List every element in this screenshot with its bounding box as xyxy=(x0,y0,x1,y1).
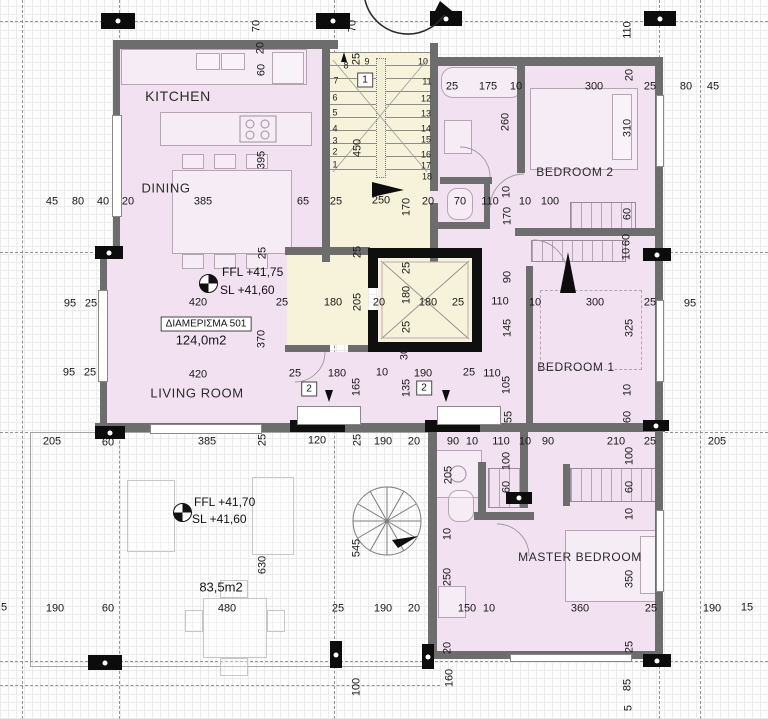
column-marker xyxy=(643,248,671,261)
dimension-label: 300 xyxy=(585,82,603,93)
grid-axis-line xyxy=(0,685,440,686)
dimension-label: 450 xyxy=(353,139,364,157)
dimension-label: 10 xyxy=(443,528,454,540)
stair-step-number: 7 xyxy=(333,77,338,86)
dimension-label: 25 xyxy=(330,197,342,208)
dimension-label: 100 xyxy=(541,197,559,208)
dimension-label: 95 xyxy=(63,368,75,379)
column-dot xyxy=(107,250,112,255)
column-dot xyxy=(116,19,121,24)
dimension-label: 100 xyxy=(352,678,363,696)
dimension-label: 25 xyxy=(353,246,364,258)
wall-segment xyxy=(113,40,338,49)
dimension-label: 10 xyxy=(510,82,522,93)
column-marker xyxy=(330,641,342,668)
stair-step-number: 5 xyxy=(332,109,337,118)
terrace-area: 83,5m2 xyxy=(199,580,242,595)
terrace-sl: SL +41,60 xyxy=(192,513,247,525)
room-label-dining: DINING xyxy=(141,182,190,195)
column-dot xyxy=(108,430,113,435)
dimension-label: 180 xyxy=(402,286,413,304)
furniture-outline xyxy=(220,658,248,676)
dimension-label: 150 xyxy=(458,604,476,615)
dimension-label: 10 xyxy=(622,248,633,260)
window-tag: 2 xyxy=(301,382,317,397)
stair-railing xyxy=(376,58,386,178)
dimension-label: 25 xyxy=(446,82,458,93)
dimension-label: 205 xyxy=(43,437,61,448)
dimension-label: 80 xyxy=(72,197,84,208)
dimension-label: 110 xyxy=(492,437,510,448)
apartment-area: 124,0m2 xyxy=(176,333,227,348)
furniture-outline xyxy=(252,477,294,555)
apartment-sl: SL +41,60 xyxy=(220,284,275,296)
furniture-outline xyxy=(127,480,175,552)
dimension-label: 110 xyxy=(491,297,509,308)
stair-step-number: 6 xyxy=(332,94,337,103)
column-dot xyxy=(331,19,336,24)
window-tag: 2 xyxy=(416,381,432,396)
dimension-label: 190 xyxy=(374,604,392,615)
dimension-label: 25 xyxy=(258,434,269,446)
dimension-label: 190 xyxy=(46,604,64,615)
floor-plan-canvas: FFL +41,75 SL +41,60 ΔΙΑΜΕΡΙΣΜΑ 501 124,… xyxy=(0,0,768,719)
dimension-label: 25 xyxy=(352,53,363,65)
column-marker xyxy=(643,654,671,667)
room-label-living-room: LIVING ROOM xyxy=(150,387,243,400)
wall-segment xyxy=(285,345,330,352)
room-label-kitchen: KITCHEN xyxy=(145,89,211,103)
level-target-icon xyxy=(199,274,218,293)
column-marker xyxy=(88,655,122,670)
dimension-label: 10 xyxy=(529,298,541,309)
dimension-label: 135 xyxy=(402,379,413,397)
dimension-label: 40 xyxy=(97,197,109,208)
dimension-label: 85 xyxy=(623,679,634,691)
dimension-label: 325 xyxy=(625,319,636,337)
column-dot xyxy=(655,252,660,257)
wall-segment-dark xyxy=(368,342,482,352)
dimension-label: 260 xyxy=(501,113,512,131)
window xyxy=(297,406,361,425)
dimension-label: 180 xyxy=(419,298,437,309)
dimension-label: 95 xyxy=(64,299,76,310)
dimension-label: 190 xyxy=(374,437,392,448)
dimension-label: 60 xyxy=(622,234,633,246)
column-marker xyxy=(95,246,123,259)
dimension-label: 205 xyxy=(353,293,364,311)
dimension-label: 25 xyxy=(402,262,413,274)
grid-axis-line xyxy=(22,0,23,719)
dimension-label: 20 xyxy=(422,197,434,208)
dimension-label: 25 xyxy=(258,247,269,259)
stair-step-number: 12 xyxy=(421,95,431,104)
dimension-label: 25 xyxy=(402,321,413,333)
dimension-label: 20 xyxy=(443,642,454,654)
dimension-label: 250 xyxy=(443,568,454,586)
dimension-label: 630 xyxy=(258,556,269,574)
dimension-label: 300 xyxy=(586,298,604,309)
column-dot xyxy=(658,16,663,21)
wall-segment xyxy=(322,43,330,262)
dimension-label: 20 xyxy=(408,604,420,615)
dimension-label: 250 xyxy=(372,196,390,207)
dimension-label: 10 xyxy=(502,186,513,198)
column-dot xyxy=(517,496,522,501)
dimension-label: 10 xyxy=(483,604,495,615)
column-dot xyxy=(444,16,449,21)
dimension-label: 5 xyxy=(1,603,7,614)
furniture-outline xyxy=(196,53,220,70)
window xyxy=(98,290,108,382)
dimension-label: 110 xyxy=(481,197,499,208)
dimension-label: 205 xyxy=(708,437,726,448)
furniture-outline xyxy=(182,254,204,269)
stair-step-number: 2 xyxy=(332,148,337,157)
stair-step-number: 17 xyxy=(421,162,431,171)
furniture-outline xyxy=(640,536,656,594)
window xyxy=(656,510,664,592)
furniture-outline xyxy=(182,154,204,169)
wall-segment xyxy=(563,464,570,506)
column-dot xyxy=(426,654,431,659)
dimension-label: 25 xyxy=(625,641,636,653)
dimension-label: 175 xyxy=(479,82,497,93)
terrace-ffl: FFL +41,70 xyxy=(194,496,255,508)
dimension-label: 70 xyxy=(454,197,466,208)
window-tag: 1 xyxy=(357,73,373,88)
dimension-label: 60 xyxy=(257,64,268,76)
dimension-label: 100 xyxy=(625,447,636,465)
room-label-bedroom-1: BEDROOM 1 xyxy=(537,361,614,373)
stair-step-number: 1 xyxy=(332,161,337,170)
window xyxy=(510,654,632,662)
dimension-label: 55 xyxy=(504,411,515,423)
dimension-label: 70 xyxy=(252,20,263,32)
dimension-label: 60 xyxy=(623,411,634,423)
stair-step-number: 8 xyxy=(343,62,348,71)
column-dot xyxy=(655,658,660,663)
dimension-label: 25 xyxy=(332,604,344,615)
dimension-label: 350 xyxy=(625,570,636,588)
dimension-label: 25 xyxy=(85,299,97,310)
wall-segment xyxy=(430,57,663,66)
stair-step-number: 3 xyxy=(332,137,337,146)
dimension-label: 20 xyxy=(408,437,420,448)
wall-segment xyxy=(348,345,368,352)
column-marker xyxy=(430,11,462,26)
wall-segment-dark xyxy=(368,248,482,258)
wall-segment-dark xyxy=(472,258,482,342)
window xyxy=(150,424,262,434)
dimension-label: 190 xyxy=(703,604,721,615)
dimension-label: 80 xyxy=(680,82,692,93)
dimension-label: 100 xyxy=(502,452,513,470)
furniture-outline xyxy=(221,53,245,70)
dimension-label: 190 xyxy=(414,369,432,380)
dimension-label: 25 xyxy=(353,434,364,446)
dimension-label: 10 xyxy=(623,384,634,396)
dimension-label: 95 xyxy=(684,299,696,310)
dimension-label: 25 xyxy=(644,298,656,309)
dimension-label: 25 xyxy=(452,298,464,309)
column-marker xyxy=(644,11,676,26)
dimension-label: 20 xyxy=(122,197,134,208)
furniture-outline xyxy=(185,610,203,632)
dimension-label: 160 xyxy=(445,669,456,687)
dimension-label: 145 xyxy=(503,319,514,337)
stair-step-number: 13 xyxy=(421,110,431,119)
dimension-label: 395 xyxy=(257,151,268,169)
apartment-tag: ΔΙΑΜΕΡΙΣΜΑ 501 xyxy=(161,317,252,332)
furniture-outline xyxy=(444,120,472,154)
dimension-label: 210 xyxy=(607,437,625,448)
stair-step-number: 16 xyxy=(421,151,431,160)
window xyxy=(656,95,664,167)
wall-segment xyxy=(478,462,486,516)
window xyxy=(437,406,501,425)
wall-segment xyxy=(428,432,437,658)
dimension-label: 110 xyxy=(623,21,634,39)
stair-step-number: 18 xyxy=(422,173,432,182)
stair-step-number: 15 xyxy=(421,136,431,145)
room-label-master-bedroom: MASTER BEDROOM xyxy=(518,551,642,563)
dimension-label: 15 xyxy=(741,603,753,614)
dimension-label: 45 xyxy=(46,197,58,208)
stair-step-number: 11 xyxy=(422,78,431,87)
level-target-icon xyxy=(173,503,192,522)
dimension-label: 30 xyxy=(400,348,411,360)
dimension-label: 60 xyxy=(102,604,114,615)
dimension-label: 20 xyxy=(256,42,267,54)
dimension-label: 25 xyxy=(276,298,288,309)
wall-segment-dark xyxy=(368,258,378,288)
column-dot xyxy=(103,660,108,665)
column-marker xyxy=(643,420,669,431)
window xyxy=(112,115,122,217)
stair-step-number: 14 xyxy=(421,125,431,134)
wall-segment xyxy=(474,512,534,520)
dimension-label: 5 xyxy=(624,705,635,711)
closet-hatch xyxy=(570,468,660,502)
dimension-label: 25 xyxy=(644,437,656,448)
dimension-label: 165 xyxy=(352,378,363,396)
column-marker xyxy=(101,13,135,29)
dimension-label: 170 xyxy=(402,198,413,216)
dimension-label: 65 xyxy=(297,197,309,208)
dimension-label: 20 xyxy=(625,69,636,81)
wall-segment xyxy=(430,43,438,191)
dimension-label: 10 xyxy=(519,437,531,448)
dimension-label: 110 xyxy=(483,369,501,380)
furniture-outline xyxy=(272,52,304,84)
wall-segment xyxy=(526,266,533,423)
column-dot xyxy=(654,423,659,428)
dimension-label: 90 xyxy=(447,437,459,448)
stair-step-number: 10 xyxy=(418,58,428,67)
dimension-label: 25 xyxy=(463,368,475,379)
dimension-label: 120 xyxy=(308,436,326,447)
furniture-outline xyxy=(214,154,236,169)
dimension-label: 180 xyxy=(324,298,342,309)
room-label-bedroom-2: BEDROOM 2 xyxy=(536,166,613,178)
dimension-label: 20 xyxy=(373,298,385,309)
dimension-label: 60 xyxy=(502,481,513,493)
dimension-label: 420 xyxy=(189,298,207,309)
stair-step-number: 9 xyxy=(364,58,369,67)
dimension-label: 60 xyxy=(102,438,114,449)
furniture-outline xyxy=(160,112,312,146)
dimension-label: 90 xyxy=(542,437,554,448)
dimension-label: 360 xyxy=(571,604,589,615)
dimension-label: 25 xyxy=(644,82,656,93)
dimension-label: 420 xyxy=(189,370,207,381)
grid-axis-line xyxy=(700,0,701,719)
dimension-label: 205 xyxy=(444,466,455,484)
column-marker xyxy=(422,644,434,669)
stair-step-number: 4 xyxy=(332,125,337,134)
column-dot xyxy=(334,652,339,657)
closet-hatch xyxy=(531,240,626,262)
dimension-label: 480 xyxy=(218,604,236,615)
window xyxy=(656,300,664,382)
dimension-label: 310 xyxy=(623,119,634,137)
wall-segment xyxy=(515,228,663,236)
wall-segment-dark xyxy=(368,310,378,352)
dimension-label: 10 xyxy=(625,508,636,520)
dimension-label: 90 xyxy=(503,271,514,283)
furniture-outline xyxy=(267,610,285,632)
dimension-label: 545 xyxy=(352,539,363,557)
dimension-label: 385 xyxy=(194,197,212,208)
dimension-label: 60 xyxy=(625,481,636,493)
furniture-outline xyxy=(448,490,474,522)
column-marker xyxy=(506,492,532,504)
dimension-label: 70 xyxy=(348,20,359,32)
wall-segment xyxy=(433,222,489,229)
dimension-label: 370 xyxy=(257,330,268,348)
dimension-label: 25 xyxy=(645,604,657,615)
dimension-label: 10 xyxy=(376,368,388,379)
dimension-label: 170 xyxy=(503,207,514,225)
dimension-label: 60 xyxy=(623,208,634,220)
dimension-label: 10 xyxy=(466,437,478,448)
dimension-label: 385 xyxy=(198,437,216,448)
dimension-label: 10 xyxy=(519,197,531,208)
dimension-label: 105 xyxy=(502,376,513,394)
dimension-label: 180 xyxy=(328,369,346,380)
column-marker xyxy=(316,13,350,29)
dimension-label: 45 xyxy=(707,82,719,93)
dimension-label: 25 xyxy=(289,369,301,380)
apartment-ffl: FFL +41,75 xyxy=(222,266,283,278)
dimension-label: 25 xyxy=(84,368,96,379)
